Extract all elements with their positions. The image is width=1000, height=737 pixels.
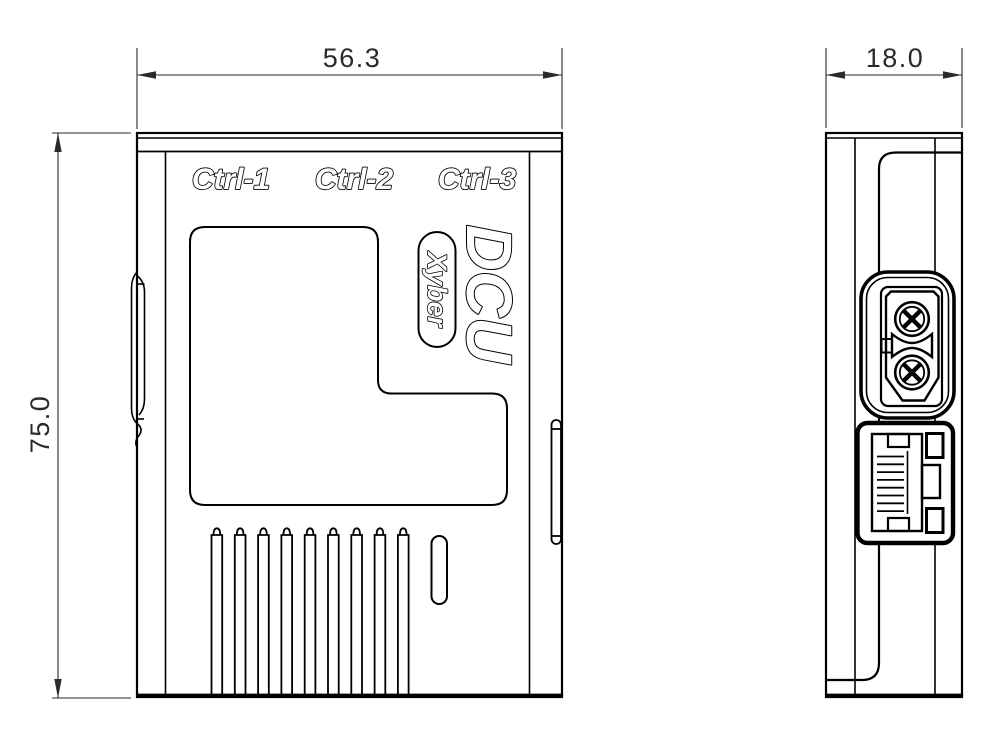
front-enclosure-outline bbox=[137, 133, 562, 697]
pin-circle-top bbox=[895, 302, 929, 336]
height-dim-text: 75.0 bbox=[25, 395, 55, 454]
port-label-3: Ctrl-3 bbox=[438, 163, 517, 196]
dimension-depth-18-0: 18.0 bbox=[826, 43, 962, 128]
side-view bbox=[826, 133, 962, 697]
front-view: Ctrl-1 Ctrl-2 Ctrl-3 DCU Xyber bbox=[132, 133, 563, 697]
depth-dim-text: 18.0 bbox=[866, 43, 925, 73]
product-name-text: DCU bbox=[453, 225, 525, 365]
arrowhead bbox=[826, 71, 845, 78]
arrowhead bbox=[943, 71, 962, 78]
drawing-canvas: Ctrl-1 Ctrl-2 Ctrl-3 DCU Xyber bbox=[0, 0, 1000, 737]
arrowhead bbox=[137, 71, 156, 78]
power-connector-ring bbox=[861, 272, 954, 418]
brand-badge-text: Xyber bbox=[422, 250, 452, 329]
technical-drawing-page: Ctrl-1 Ctrl-2 Ctrl-3 DCU Xyber bbox=[0, 0, 1000, 737]
dimension-width-56-3: 56.3 bbox=[137, 43, 562, 129]
dimension-height-75-0: 75.0 bbox=[25, 133, 131, 698]
arrowhead bbox=[543, 71, 562, 78]
port-label-1: Ctrl-1 bbox=[192, 163, 270, 196]
rj45-port bbox=[858, 423, 954, 543]
arrowhead bbox=[54, 133, 61, 152]
power-connector bbox=[861, 272, 954, 418]
pin-circle-bottom bbox=[895, 356, 929, 390]
width-dim-text: 56.3 bbox=[323, 43, 382, 73]
arrowhead bbox=[54, 679, 61, 698]
port-label-2: Ctrl-2 bbox=[315, 163, 394, 196]
